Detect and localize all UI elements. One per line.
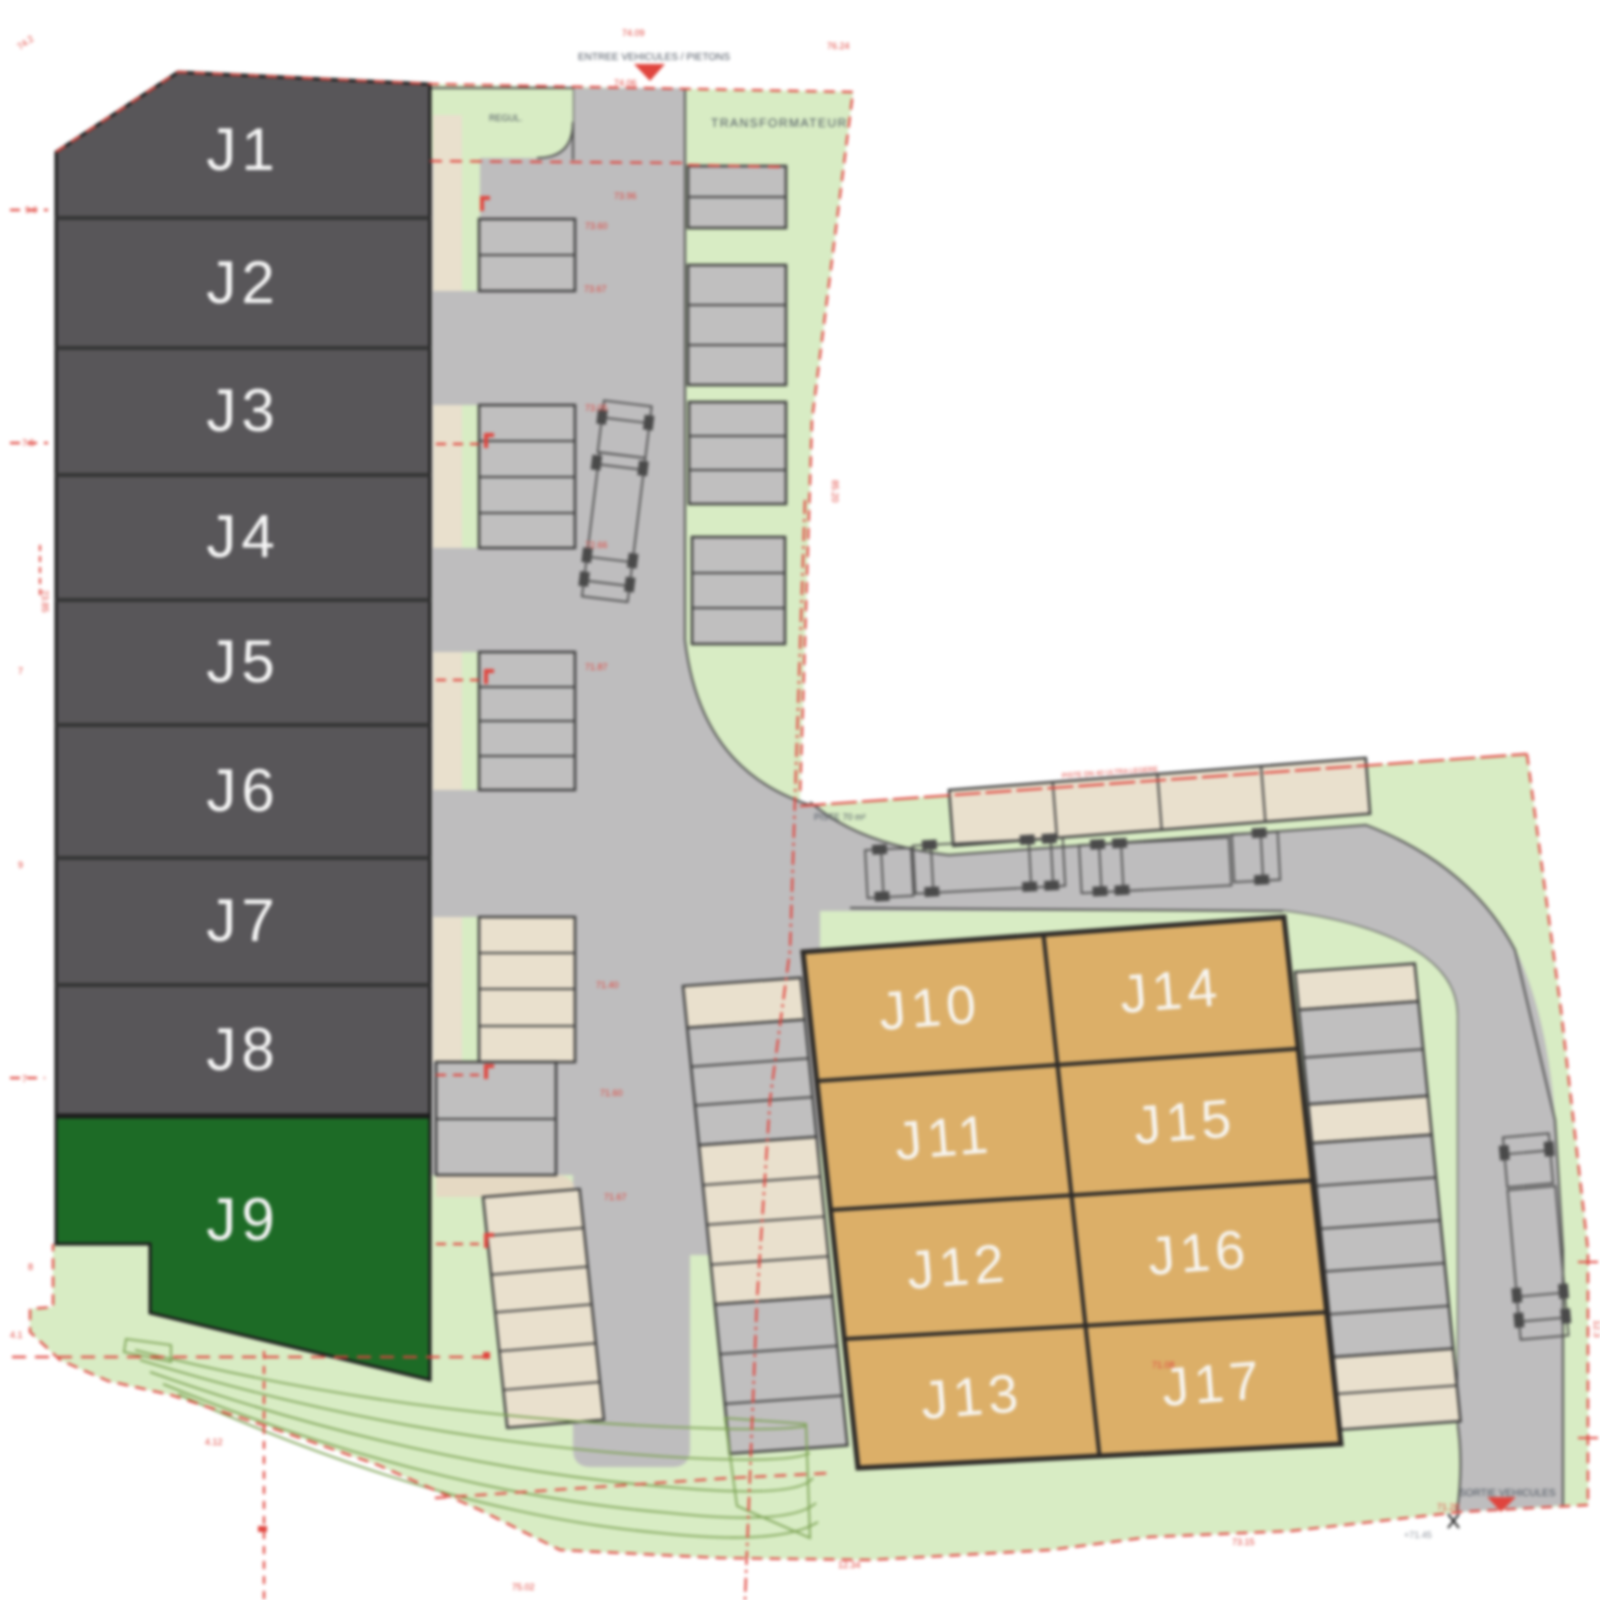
svg-text:J9: J9 [206,1186,279,1253]
svg-text:J11: J11 [893,1104,995,1172]
svg-text:71.60: 71.60 [600,1088,623,1098]
svg-text:J14: J14 [1118,957,1224,1025]
svg-text:85.20: 85.20 [830,480,840,503]
svg-text:71.87: 71.87 [585,662,608,672]
svg-text:75.02: 75.02 [512,1582,535,1592]
svg-text:8: 8 [28,1262,33,1272]
svg-text:J4: J4 [206,503,279,570]
svg-text:73.15: 73.15 [1232,1537,1255,1547]
svg-text:J15: J15 [1132,1088,1238,1156]
svg-text:J6: J6 [206,757,279,824]
svg-text:J16: J16 [1146,1219,1252,1287]
svg-text:73.96: 73.96 [614,191,637,201]
svg-text:7.5: 7.5 [22,438,35,448]
svg-text:J17: J17 [1160,1350,1266,1418]
svg-text:J13: J13 [919,1363,1025,1431]
svg-text:12.3: 12.3 [1592,1320,1600,1338]
svg-text:J2: J2 [206,249,279,316]
svg-text:4.1: 4.1 [10,1330,23,1340]
svg-text:23.85: 23.85 [40,590,50,613]
svg-text:71.67: 71.67 [604,1192,627,1202]
svg-text:J3: J3 [206,377,279,444]
svg-text:71.08: 71.08 [1152,1360,1175,1370]
svg-text:TRANSFORMATEUR: TRANSFORMATEUR [711,116,848,130]
svg-text:73.60: 73.60 [585,221,608,231]
svg-text:SORTIE VEHICULES: SORTIE VEHICULES [1459,1488,1556,1499]
svg-text:J1: J1 [206,116,279,183]
svg-text:ENTREE VEHICULES / PIETONS: ENTREE VEHICULES / PIETONS [578,52,730,63]
svg-text:7: 7 [22,1074,27,1084]
svg-text:4.12: 4.12 [205,1437,223,1447]
svg-text:J12: J12 [905,1233,1011,1301]
svg-text:12.34: 12.34 [838,1560,861,1570]
svg-text:J5: J5 [206,628,279,695]
svg-text:71.40: 71.40 [596,980,619,990]
svg-text:J8: J8 [206,1016,279,1083]
svg-text:72.66: 72.66 [585,540,608,550]
svg-text:7: 7 [18,666,23,676]
svg-text:71.28: 71.28 [1437,1502,1460,1512]
svg-text:9.0: 9.0 [25,205,38,215]
svg-text:PISTE 70 m²: PISTE 70 m² [814,812,866,822]
svg-text:73.67: 73.67 [584,284,607,294]
svg-text:76.24: 76.24 [827,41,850,51]
svg-text:REGUL.: REGUL. [489,113,523,123]
svg-text:74.09: 74.09 [622,28,645,38]
svg-text:+71.45: +71.45 [1404,1530,1432,1540]
svg-text:74.06: 74.06 [614,78,637,88]
svg-text:J7: J7 [206,887,279,954]
svg-text:9: 9 [18,860,23,870]
svg-text:73.05: 73.05 [585,403,608,413]
svg-text:J10: J10 [877,974,983,1042]
